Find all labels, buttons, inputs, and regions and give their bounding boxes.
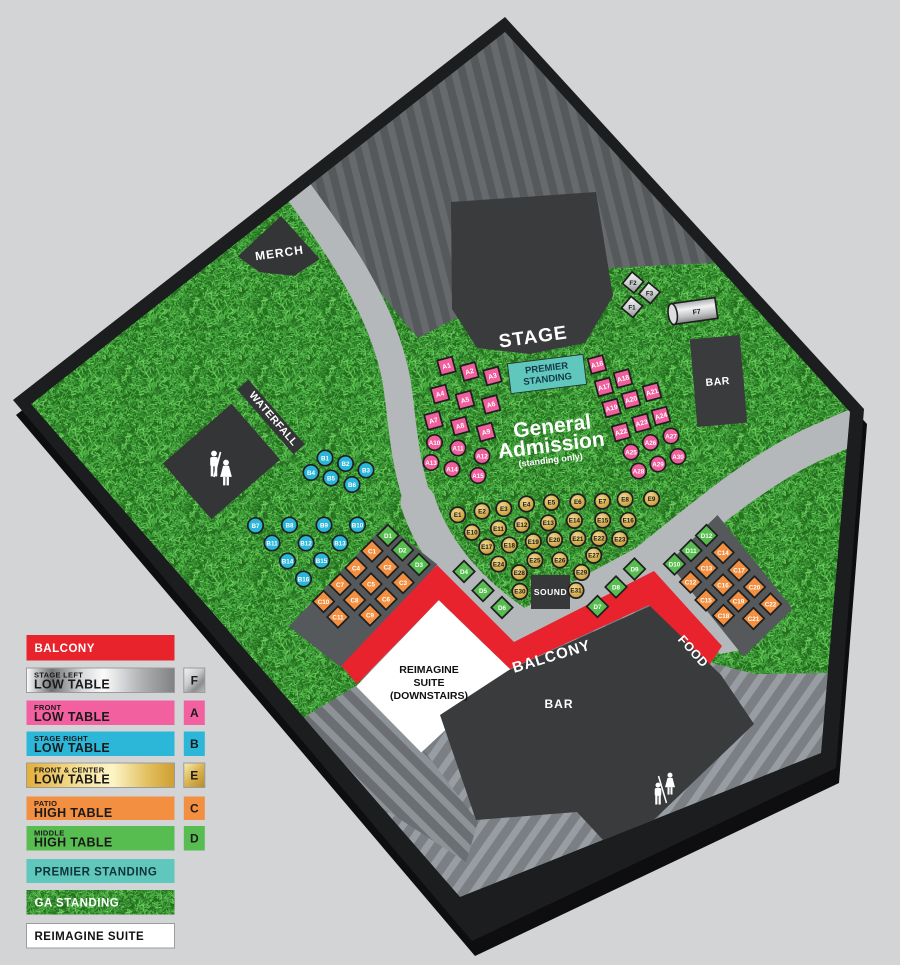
svg-text:LOW TABLE: LOW TABLE (34, 773, 110, 787)
svg-text:C14: C14 (717, 550, 729, 557)
svg-text:D6: D6 (498, 605, 507, 612)
svg-text:SUITE: SUITE (414, 677, 445, 689)
svg-text:D2: D2 (398, 547, 407, 554)
svg-text:C15: C15 (700, 597, 712, 604)
svg-text:E18: E18 (504, 542, 516, 549)
svg-text:E22: E22 (593, 536, 605, 543)
svg-text:E8: E8 (621, 497, 629, 504)
svg-text:D12: D12 (701, 533, 713, 540)
svg-text:LOW TABLE: LOW TABLE (34, 741, 110, 755)
svg-text:E10: E10 (466, 530, 478, 537)
svg-text:A27: A27 (665, 433, 677, 440)
svg-text:B10: B10 (352, 522, 364, 529)
svg-text:E31: E31 (570, 588, 582, 595)
svg-text:C6: C6 (382, 596, 391, 603)
svg-text:F3: F3 (646, 290, 654, 297)
svg-text:E13: E13 (543, 520, 555, 527)
svg-text:A: A (190, 706, 199, 720)
svg-text:C22: C22 (765, 601, 777, 608)
svg-text:E2: E2 (478, 508, 486, 515)
svg-text:BALCONY: BALCONY (35, 643, 95, 655)
svg-text:E11: E11 (493, 526, 504, 533)
svg-text:C12: C12 (685, 579, 697, 586)
svg-text:E7: E7 (599, 499, 607, 506)
svg-text:E25: E25 (529, 558, 541, 565)
svg-text:D9: D9 (630, 566, 639, 573)
svg-text:C21: C21 (748, 616, 760, 623)
svg-text:C19: C19 (733, 598, 745, 605)
svg-text:B1: B1 (321, 455, 330, 462)
svg-text:B9: B9 (320, 522, 329, 529)
svg-text:BAR: BAR (545, 697, 574, 711)
svg-text:E16: E16 (623, 518, 635, 525)
svg-text:F2: F2 (629, 280, 637, 287)
svg-text:B: B (190, 737, 199, 751)
svg-text:B16: B16 (298, 576, 310, 583)
svg-text:F: F (191, 674, 198, 688)
svg-text:A28: A28 (633, 468, 645, 475)
svg-text:A30: A30 (672, 454, 684, 461)
svg-text:C9: C9 (366, 612, 375, 619)
svg-text:A13: A13 (425, 460, 437, 467)
svg-text:C16: C16 (717, 582, 729, 589)
svg-text:HIGH TABLE: HIGH TABLE (34, 806, 112, 820)
svg-text:F1: F1 (628, 304, 636, 311)
svg-text:E24: E24 (493, 561, 505, 568)
svg-text:E3: E3 (500, 506, 508, 513)
svg-text:REIMAGINE: REIMAGINE (399, 664, 459, 676)
svg-text:C: C (190, 802, 199, 816)
svg-text:A11: A11 (452, 445, 464, 452)
svg-text:C2: C2 (383, 564, 392, 571)
svg-text:D: D (190, 832, 199, 846)
svg-text:E4: E4 (523, 501, 531, 508)
svg-text:E9: E9 (648, 496, 656, 503)
svg-text:E14: E14 (569, 518, 581, 525)
svg-text:B5: B5 (327, 475, 336, 482)
svg-text:E28: E28 (514, 570, 526, 577)
svg-text:E5: E5 (548, 500, 556, 507)
svg-text:D5: D5 (479, 588, 488, 595)
svg-text:E29: E29 (576, 570, 588, 577)
svg-text:PREMIER STANDING: PREMIER STANDING (35, 866, 158, 878)
svg-text:SOUND: SOUND (534, 587, 567, 597)
svg-text:C1: C1 (368, 548, 377, 555)
svg-text:D7: D7 (593, 604, 602, 611)
svg-text:LOW TABLE: LOW TABLE (34, 678, 110, 692)
svg-text:E21: E21 (572, 536, 584, 543)
svg-text:E20: E20 (549, 537, 561, 544)
svg-text:C7: C7 (336, 582, 345, 589)
svg-text:A10: A10 (429, 440, 441, 447)
svg-text:C13: C13 (701, 565, 713, 572)
svg-text:D1: D1 (384, 533, 393, 540)
svg-text:D10: D10 (669, 561, 681, 568)
svg-text:C8: C8 (350, 597, 359, 604)
svg-text:E6: E6 (574, 499, 582, 506)
svg-text:C17: C17 (733, 567, 745, 574)
svg-text:B14: B14 (282, 558, 294, 565)
svg-text:A26: A26 (645, 440, 657, 447)
svg-text:C11: C11 (332, 614, 344, 621)
svg-text:D4: D4 (460, 569, 469, 576)
svg-text:B15: B15 (316, 558, 328, 565)
svg-text:E17: E17 (481, 544, 493, 551)
svg-text:E15: E15 (597, 517, 609, 524)
svg-text:E26: E26 (554, 557, 566, 564)
svg-text:GA STANDING: GA STANDING (35, 898, 120, 910)
svg-text:C18: C18 (718, 613, 730, 620)
svg-text:C4: C4 (352, 565, 361, 572)
svg-text:E27: E27 (588, 553, 600, 560)
svg-text:BAR: BAR (705, 375, 730, 389)
svg-text:B13: B13 (334, 540, 346, 547)
svg-text:B6: B6 (348, 482, 357, 489)
svg-text:B4: B4 (307, 470, 316, 477)
svg-text:(DOWNSTAIRS): (DOWNSTAIRS) (390, 690, 468, 702)
svg-text:D3: D3 (415, 562, 424, 569)
svg-text:E19: E19 (528, 539, 540, 546)
svg-text:C10: C10 (318, 599, 330, 606)
svg-text:E1: E1 (454, 512, 462, 519)
svg-text:E30: E30 (514, 589, 526, 596)
svg-text:C20: C20 (749, 584, 761, 591)
svg-text:C3: C3 (399, 580, 408, 587)
svg-text:E23: E23 (614, 536, 626, 543)
svg-text:HIGH TABLE: HIGH TABLE (34, 836, 112, 850)
svg-text:REIMAGINE SUITE: REIMAGINE SUITE (35, 931, 145, 943)
svg-text:D11: D11 (685, 548, 697, 555)
svg-text:E12: E12 (516, 522, 528, 529)
svg-text:A15: A15 (472, 473, 484, 480)
svg-text:A14: A14 (446, 466, 458, 473)
svg-text:A25: A25 (625, 449, 637, 456)
svg-text:B8: B8 (285, 522, 294, 529)
svg-text:C5: C5 (367, 581, 376, 588)
svg-text:F7: F7 (692, 308, 701, 316)
svg-text:E: E (190, 769, 198, 783)
svg-text:B3: B3 (362, 467, 371, 474)
svg-text:D8: D8 (612, 584, 621, 591)
svg-text:B11: B11 (266, 540, 278, 547)
svg-text:LOW TABLE: LOW TABLE (34, 710, 110, 724)
svg-text:B12: B12 (300, 540, 312, 547)
svg-text:A29: A29 (652, 461, 664, 468)
svg-text:B7: B7 (251, 523, 260, 530)
svg-text:A12: A12 (476, 453, 488, 460)
svg-text:B2: B2 (341, 461, 350, 468)
